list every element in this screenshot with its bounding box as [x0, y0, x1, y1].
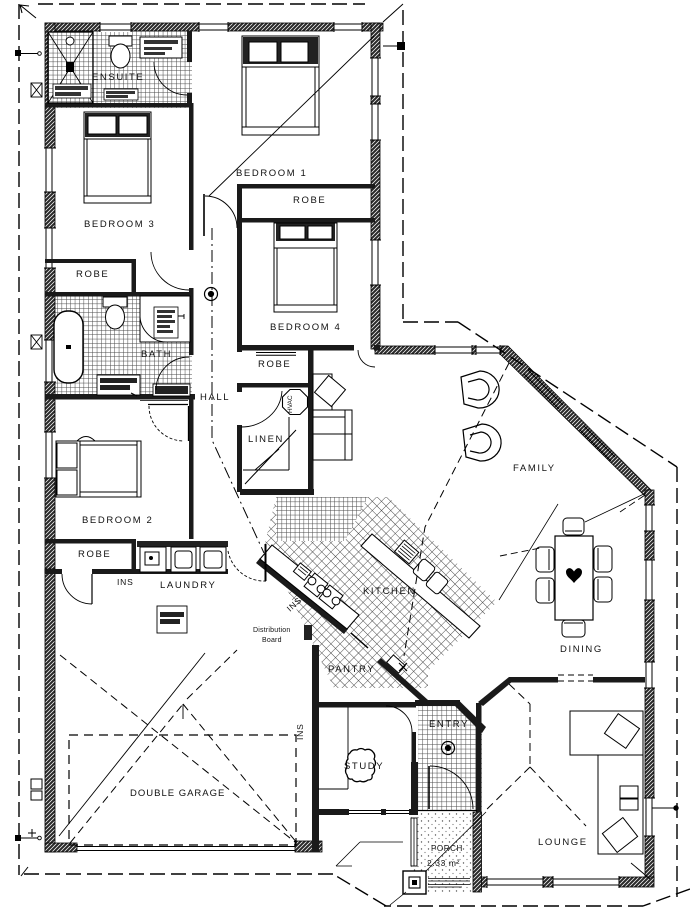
svg-text:BEDROOM 2: BEDROOM 2 [82, 515, 153, 526]
svg-text:HALL: HALL [200, 392, 230, 403]
svg-text:LAUNDRY: LAUNDRY [160, 580, 216, 591]
svg-text:STUDY: STUDY [344, 761, 384, 772]
svg-text:KITCHEN: KITCHEN [363, 586, 416, 597]
svg-text:ENSUITE: ENSUITE [92, 72, 144, 83]
svg-text:Distribution: Distribution [253, 627, 290, 634]
svg-text:Board: Board [262, 637, 282, 644]
svg-text:ROBE: ROBE [258, 359, 291, 370]
svg-text:BEDROOM 3: BEDROOM 3 [84, 219, 155, 230]
svg-text:INS: INS [117, 577, 134, 587]
svg-text:LOUNGE: LOUNGE [538, 837, 588, 848]
svg-text:INS: INS [295, 723, 305, 740]
svg-text:ROBE: ROBE [76, 269, 109, 280]
svg-text:2.33 m²: 2.33 m² [427, 858, 460, 868]
svg-text:PANTRY: PANTRY [328, 664, 375, 675]
svg-text:LINEN: LINEN [248, 434, 284, 445]
svg-text:BATH: BATH [141, 349, 172, 360]
svg-text:BEDROOM 1: BEDROOM 1 [236, 168, 307, 179]
svg-text:DINING: DINING [560, 644, 603, 655]
svg-text:ROBE: ROBE [78, 549, 111, 560]
svg-text:ENTRY: ENTRY [429, 719, 469, 730]
svg-text:FAMILY: FAMILY [513, 463, 556, 474]
svg-text:BEDROOM 4: BEDROOM 4 [270, 322, 341, 333]
svg-text:ROBE: ROBE [293, 195, 326, 206]
svg-text:DOUBLE GARAGE: DOUBLE GARAGE [130, 788, 225, 799]
svg-text:PORCH: PORCH [431, 844, 463, 853]
svg-text:HVAC: HVAC [287, 395, 294, 413]
